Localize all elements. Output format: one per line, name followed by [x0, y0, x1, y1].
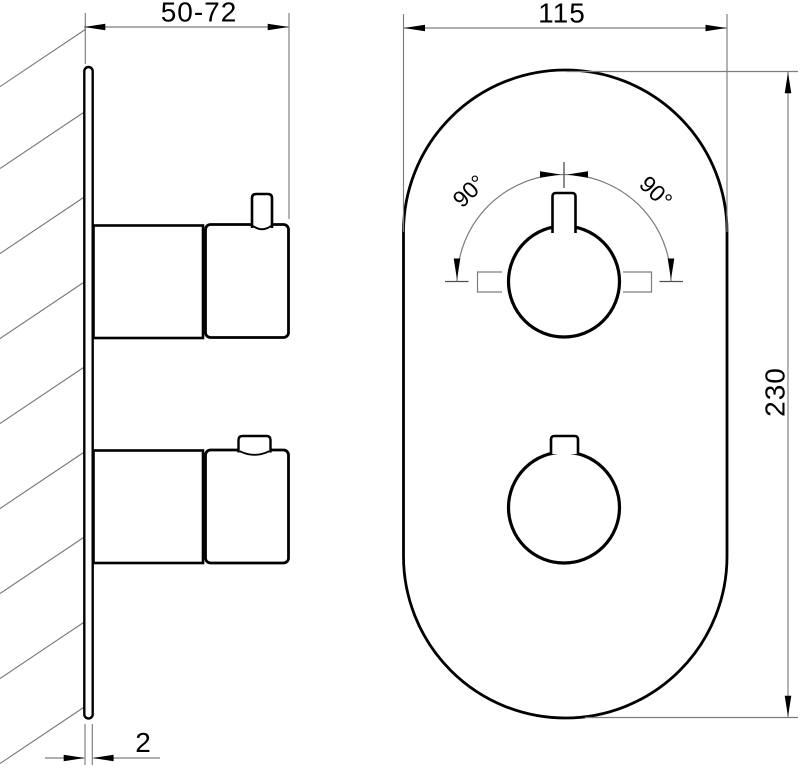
front-view: 90° 90° [404, 70, 728, 718]
dimension-value-height: 230 [760, 367, 791, 417]
hatch-line [0, 537, 84, 594]
dimension-value-thickness: 2 [135, 727, 152, 758]
dim-arrowhead [785, 696, 792, 717]
lever-handle-side [252, 194, 272, 228]
faceplate-oval [404, 70, 728, 718]
mounting-plate [84, 67, 92, 719]
flow-knob [509, 452, 620, 563]
valve-body-lower [94, 451, 204, 564]
hatch-line [0, 367, 84, 424]
hatch-line [0, 452, 84, 509]
dim-arrowhead [785, 72, 792, 93]
dimension-value-depth: 50-72 [161, 0, 238, 28]
side-view [0, 29, 289, 764]
knob-tab-side [239, 436, 271, 453]
technical-drawing-canvas: 90° 90° 50-72 115 [0, 0, 800, 771]
dim-arrowhead [84, 24, 105, 31]
hatch-line [0, 197, 84, 254]
lever-handle-front [553, 193, 576, 233]
temperature-knob [509, 226, 620, 337]
dim-arrowhead [268, 24, 289, 31]
hatch-line [0, 707, 84, 764]
lower-valve-side [94, 436, 289, 563]
dimension-value-width: 115 [538, 0, 586, 29]
dimension-thickness: 2 [45, 724, 160, 765]
knob-tab-front [551, 436, 578, 454]
hatch-line [0, 29, 86, 87]
dimensional-drawing: 90° 90° 50-72 115 [0, 0, 800, 771]
control-knob-upper-side [206, 225, 289, 338]
hatch-line [0, 282, 84, 339]
dimension-depth-range: 50-72 [84, 0, 289, 219]
dim-arrowhead [404, 25, 425, 32]
valve-body-upper [94, 226, 204, 339]
wall-hatch [0, 29, 86, 764]
dim-arrowhead [64, 755, 85, 762]
dim-arrowhead [93, 755, 114, 762]
control-knob-lower-side [206, 450, 289, 563]
dim-arrowhead [706, 25, 727, 32]
hatch-line [0, 622, 84, 679]
upper-valve-side [94, 194, 289, 338]
hatch-line [0, 112, 84, 169]
